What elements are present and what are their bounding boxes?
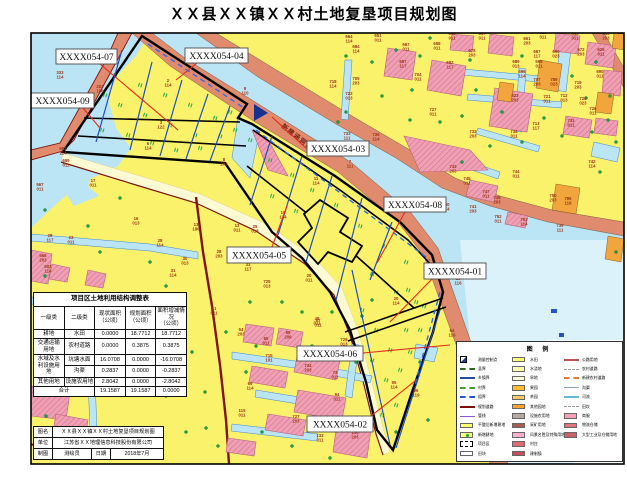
cell: 农村道路	[64, 339, 95, 355]
cell: 0.0000	[95, 329, 126, 339]
legend-swatch-icon	[564, 432, 580, 438]
tree-icon	[395, 431, 398, 434]
tree-icon	[409, 119, 412, 122]
tree-icon	[205, 427, 208, 430]
parcel-label: 705203	[352, 76, 360, 85]
tree-icon	[185, 431, 188, 434]
tree-icon	[281, 301, 284, 304]
cell: -16.0708	[156, 355, 187, 366]
legend-item: 设施农用地	[512, 411, 564, 420]
legend-column-boundaries: 测量控制点县界乡镇界村界组界规划道路管线平整后新增耕地新增耕地项目区田块	[460, 355, 512, 458]
legend-title: 图 例	[457, 342, 622, 353]
tree-icon	[165, 285, 168, 288]
parcel-label: 682117	[446, 60, 454, 69]
parcel-label: 750203	[549, 193, 557, 202]
parcel-label: 721011	[543, 94, 551, 103]
tree-icon	[591, 131, 594, 134]
tree-icon	[345, 55, 348, 58]
cell: 交通运输 用地	[34, 339, 65, 355]
callout-label: XXXX054-08	[388, 201, 443, 211]
tree-icon	[204, 391, 207, 394]
legend-label: 村界	[478, 385, 486, 391]
legend-item: 河流	[564, 393, 620, 402]
legend-swatch-icon	[512, 423, 528, 429]
legend-swatch-icon	[460, 451, 476, 457]
parcel-label: 658011	[433, 41, 441, 50]
parcel-label: 722013	[345, 91, 353, 100]
legend-swatch-icon	[460, 423, 476, 429]
parcel-label: 698011	[535, 59, 543, 68]
parcel-label: 681114	[59, 146, 67, 155]
parcel-label: 699011	[62, 158, 70, 167]
tree-icon	[609, 95, 612, 98]
legend-label: 乡镇界	[478, 375, 490, 381]
legend-label: 风景名胜及特殊用地	[530, 432, 565, 438]
parcel-label: 823203	[511, 93, 519, 102]
legend-item: 组界	[460, 393, 512, 402]
parcel-label: 734011	[510, 129, 518, 138]
parcel-label: 626011	[597, 47, 605, 56]
parcel-label: 744011	[512, 169, 520, 178]
legend-item: 采矿用地	[512, 421, 564, 430]
legend-label: 建制镇	[530, 451, 542, 457]
parcel-label: 727011	[429, 107, 437, 116]
tb-name-value: ＸＸ县ＸＸ镇ＸＸ村土地复垦项目规划图	[53, 427, 164, 438]
parcel-label: 736114	[372, 132, 380, 141]
legend-item: 公路用地	[564, 355, 620, 364]
legend-swatch-icon	[512, 413, 528, 419]
legend-item: 县界	[460, 364, 512, 373]
callout-label: XXXX054-03	[311, 145, 366, 155]
water-mark-icon	[559, 333, 564, 337]
tree-icon	[255, 345, 258, 348]
parcel-label: 733111	[343, 131, 351, 140]
tree-icon	[291, 445, 294, 448]
tree-icon	[419, 55, 422, 58]
col-header-delta: 面积增减情况 （公顷）	[156, 307, 187, 330]
legend-item: 茶园	[512, 393, 564, 402]
tb-date-label: 日期	[92, 449, 111, 460]
legend-item: 大型工业及仓储用地	[564, 430, 620, 439]
callout-label: XXXX054-04	[189, 52, 244, 62]
legend-swatch-icon	[460, 368, 476, 370]
legend-item: 测量控制点	[460, 355, 512, 364]
col-header-level2: 二级类	[64, 307, 95, 330]
tree-icon	[469, 59, 472, 62]
legend-swatch-icon	[460, 387, 476, 389]
water-mark-icon	[551, 309, 557, 313]
legend-label: 县界	[478, 366, 486, 372]
parcel-label: 742114	[588, 159, 596, 168]
tb-date-value: 2018年7月	[111, 449, 164, 460]
legend-swatch-icon	[512, 451, 528, 457]
tree-icon	[331, 311, 334, 314]
parcel-label: 712013	[560, 93, 568, 102]
cell: 耕地	[34, 329, 65, 339]
legend-item: 新增耕地	[460, 430, 512, 439]
tree-icon	[261, 431, 264, 434]
legend-label: 河流	[582, 394, 590, 400]
parcel-label: 732203	[469, 129, 477, 138]
legend-swatch-icon	[564, 377, 580, 379]
tb-unit-value: 江苏省ＸＸ地理信息科技股份有限公司	[53, 438, 164, 449]
parcel-label: 628011	[539, 30, 547, 39]
legend-swatch-icon	[512, 357, 528, 363]
tb-unit-label: 单位	[34, 438, 53, 449]
legend-swatch-icon	[460, 441, 476, 447]
callout-label: XXXX054-02	[313, 420, 368, 430]
parcel-label: 664114	[345, 34, 353, 43]
cell: 坑塘水面	[64, 355, 95, 366]
cell: 2.8042	[95, 377, 126, 387]
legend-item: 村界	[460, 383, 512, 392]
tree-icon	[475, 89, 478, 92]
parcel-label: 741203	[469, 204, 477, 213]
callout-label: XXXX054-07	[59, 53, 114, 63]
tree-icon	[217, 445, 220, 448]
parcel-label: 739111	[556, 223, 564, 232]
tree-icon	[301, 311, 304, 314]
parcel-label: 748203	[493, 195, 501, 204]
parcel-label: 689013	[512, 59, 520, 68]
legend-swatch-icon	[564, 396, 580, 398]
cell: 18.7712	[156, 329, 187, 339]
cell: 设施农用地	[64, 377, 95, 387]
tree-icon	[429, 37, 432, 40]
parcel-label: 718114	[329, 79, 337, 88]
legend-item: 村庄	[512, 440, 564, 449]
tree-icon	[44, 209, 47, 212]
tb-draw-value: 测绘员	[53, 449, 92, 460]
tree-icon	[225, 331, 228, 334]
parcel-label: 743203	[449, 164, 457, 173]
tree-icon	[461, 115, 464, 118]
legend-item: 新建农村道路	[564, 374, 620, 383]
legend-label: 茶园	[530, 394, 538, 400]
legend-label: 旱地	[530, 375, 538, 381]
legend-label: 设施农用地	[530, 413, 549, 419]
legend-swatch-icon	[564, 413, 580, 419]
legend-swatch-icon	[564, 369, 580, 370]
legend-swatch-icon	[460, 406, 476, 408]
tree-icon	[245, 371, 248, 374]
cell: 0.0000	[95, 339, 126, 355]
col-header-level1: 一级类	[34, 307, 65, 330]
col-header-planned: 规划面积 （公顷）	[125, 307, 156, 330]
tree-icon	[615, 141, 618, 144]
tree-icon	[337, 121, 340, 124]
cell: -2.8042	[156, 377, 187, 387]
legend-label: 平整后新增耕地	[478, 422, 505, 428]
tree-icon	[439, 121, 442, 124]
legend-swatch-icon	[512, 395, 528, 401]
parcel-label: 715101	[265, 353, 273, 362]
table-row: 合计 19.1587 19.1587 0.0000	[34, 387, 187, 397]
table-row: 水域及水 利设施用 地 坑塘水面 16.0708 0.0000 -16.0708	[34, 355, 187, 366]
callout-label: XXXX054-01	[428, 267, 483, 277]
legend-item: 物流仓储	[564, 421, 620, 430]
cell: 0.0000	[125, 377, 156, 387]
legend: 图 例 测量控制点县界乡镇界村界组界规划道路管线平整后新增耕地新增耕地项目区田块…	[456, 341, 623, 462]
tb-name-label: 图名	[34, 427, 53, 438]
tree-icon	[149, 261, 152, 264]
legend-item: 沟渠	[564, 383, 620, 392]
tree-icon	[249, 301, 252, 304]
legend-swatch-icon	[460, 416, 476, 417]
cell: 水田	[64, 329, 95, 339]
table-title: 项目区土地利用结构调整表	[34, 293, 187, 307]
parcel-label: 665203	[39, 253, 47, 262]
tree-icon	[427, 419, 430, 422]
legend-column-landuse: 水田水浇地旱地果园茶园其他园地设施农用地采矿用地风景名胜及特殊用地村庄建制镇	[512, 355, 564, 458]
legend-item: 田坎	[564, 402, 620, 411]
legend-item: 旱地	[512, 374, 564, 383]
legend-item: 平整后新增耕地	[460, 421, 512, 430]
parcel-label: 651011	[374, 33, 382, 42]
parcel-label: 567011	[36, 182, 44, 191]
parcel-label: 704011	[414, 72, 422, 81]
legend-label: 田块	[478, 451, 486, 457]
parcel-label: 687117	[399, 59, 407, 68]
cell: 其他用地	[34, 377, 65, 387]
legend-swatch-icon	[512, 366, 528, 372]
tree-icon	[345, 111, 348, 114]
cell: 16.0708	[95, 355, 126, 366]
parcel-label: 719203	[574, 80, 582, 89]
legend-item: 水田	[512, 355, 564, 364]
cell: 0.0000	[125, 355, 156, 366]
parcel-label: 725013	[263, 279, 271, 288]
table-row: 其他用地 设施农用地 2.8042 0.0000 -2.8042	[34, 377, 187, 387]
parcel-label: 115011	[239, 408, 247, 417]
legend-swatch-icon	[460, 377, 476, 379]
parcel-label: 133011	[316, 433, 324, 442]
tree-icon	[395, 49, 398, 52]
tree-icon	[561, 135, 564, 138]
legend-swatch-icon	[460, 356, 476, 363]
tree-icon	[543, 117, 546, 120]
cell-total: 合计	[34, 387, 95, 397]
tree-icon	[381, 95, 384, 98]
tree-icon	[371, 299, 374, 302]
legend-label: 物流仓储	[582, 422, 598, 428]
tree-icon	[571, 75, 574, 78]
tree-icon	[461, 161, 464, 164]
table-row: 耕地 水田 0.0000 18.7712 18.7712	[34, 329, 187, 339]
legend-item: 管线	[460, 411, 512, 420]
parcel-label: 745011	[463, 176, 471, 185]
legend-label: 测量控制点	[478, 357, 497, 363]
cell: 0.0000	[125, 366, 156, 377]
legend-swatch-icon	[564, 387, 580, 388]
legend-label: 水田	[530, 357, 538, 363]
tree-icon	[411, 89, 414, 92]
tree-icon	[615, 251, 618, 254]
tree-icon	[607, 119, 610, 122]
tree-icon	[45, 415, 48, 418]
parcel-label: 728013	[340, 337, 348, 346]
parcel-label: 667011	[402, 42, 410, 51]
map-title-block: 图名 ＸＸ县ＸＸ镇ＸＸ村土地复垦项目规划图 单位 江苏省ＸＸ地理信息科技股份有限…	[33, 426, 164, 460]
tree-icon	[501, 111, 504, 114]
legend-label: 水浇地	[530, 366, 542, 372]
cell: 0.3875	[156, 339, 187, 355]
tree-icon	[44, 275, 47, 278]
tree-icon	[329, 457, 332, 460]
parcel-label: 333114	[56, 70, 64, 79]
parcel-label: 690023	[552, 49, 560, 58]
legend-swatch-icon	[512, 441, 528, 447]
legend-label: 大型工业及仓储用地	[582, 432, 617, 438]
cell: 0.0000	[156, 387, 187, 397]
legend-label: 新建农村道路	[582, 375, 605, 381]
parcel-label: 720023	[579, 96, 587, 105]
tree-icon	[521, 141, 524, 144]
legend-label: 组界	[478, 394, 486, 400]
landuse-adjustment-table: 项目区土地利用结构调整表 一级类 二级类 现状面积 （公顷） 规划面积 （公顷）…	[33, 292, 187, 397]
legend-item: 其他园地	[512, 402, 564, 411]
parcel-label: 752011	[494, 214, 502, 223]
legend-label: 项目区	[478, 441, 490, 447]
parcel-label: 696114	[518, 69, 526, 78]
tree-icon	[371, 61, 374, 64]
legend-item: 农村道路	[564, 364, 620, 373]
tree-icon	[119, 197, 122, 200]
planning-map-page: ＸＸ县ＸＸ镇ＸＸ村土地复垦项目规划图	[0, 0, 627, 478]
legend-item: 商服	[564, 411, 620, 420]
parcel-label: 789023	[550, 77, 558, 86]
legend-label: 商服	[582, 413, 590, 419]
tree-icon	[521, 55, 524, 58]
cell: 沟渠	[64, 366, 95, 377]
legend-swatch-icon	[564, 423, 580, 429]
cell: 18.7712	[125, 329, 156, 339]
legend-swatch-icon	[512, 376, 528, 382]
legend-swatch-icon	[564, 406, 580, 407]
legend-label: 规划道路	[478, 404, 494, 410]
parcel-label: 672203	[577, 47, 585, 56]
parcel-label: 726011	[589, 106, 597, 115]
legend-swatch-icon	[512, 432, 528, 438]
cell: 0.3875	[125, 339, 156, 355]
parcel-label: 684114	[352, 44, 360, 53]
cell: -0.2837	[156, 366, 187, 377]
parcel-label: 747011	[482, 189, 490, 198]
parcel-label: 713117	[532, 121, 540, 130]
tree-icon	[599, 171, 602, 174]
legend-label: 公路用地	[582, 357, 598, 363]
legend-item: 乡镇界	[460, 374, 512, 383]
parcel-label: 731011	[567, 118, 575, 127]
legend-label: 采矿用地	[530, 422, 546, 428]
legend-item: 规划道路	[460, 402, 512, 411]
callout-label: XXXX054-06	[303, 350, 358, 360]
table-row: 交通运输 用地 农村道路 0.0000 0.3875 0.3875	[34, 339, 187, 355]
legend-swatch-icon	[460, 396, 476, 398]
legend-label: 田坎	[582, 404, 590, 410]
legend-item: 田块	[460, 449, 512, 458]
legend-label: 果园	[530, 385, 538, 391]
tree-icon	[87, 225, 90, 228]
parcel-label: 679203	[468, 48, 476, 57]
parcel-label: 667117	[533, 49, 541, 58]
legend-label: 沟渠	[582, 385, 590, 391]
legend-label: 管线	[478, 413, 486, 419]
tree-icon	[489, 145, 492, 148]
legend-column-lines: 公路用地农村道路新建农村道路沟渠河流田坎商服物流仓储大型工业及仓储用地	[564, 355, 620, 458]
tree-icon	[99, 251, 102, 254]
parcel-label: 661203	[523, 36, 531, 45]
col-header-current: 现状面积 （公顷）	[95, 307, 126, 330]
legend-label: 村庄	[530, 441, 538, 447]
cell: 0.2837	[95, 366, 126, 377]
callout-label: XXXX054-05	[232, 251, 287, 261]
legend-swatch-icon	[564, 359, 580, 361]
parcel-label: 707203	[533, 77, 541, 86]
legend-label: 农村道路	[582, 366, 598, 372]
legend-item: 风景名胜及特殊用地	[512, 430, 564, 439]
tree-icon	[595, 61, 598, 64]
legend-item: 水浇地	[512, 364, 564, 373]
legend-swatch-icon	[512, 385, 528, 391]
tree-icon	[191, 351, 194, 354]
parcel-label: 727203	[292, 414, 300, 423]
tb-draw-label: 制图	[34, 449, 53, 460]
legend-swatch-icon	[512, 404, 528, 410]
callout-label: XXXX054-09	[35, 97, 90, 107]
cell: 19.1587	[95, 387, 126, 397]
parcel-label: 203196	[96, 84, 104, 93]
parcel-label: 786118	[564, 196, 572, 205]
legend-label: 其他园地	[530, 404, 546, 410]
legend-label: 新增耕地	[478, 432, 494, 438]
cell: 水域及水 利设施用 地	[34, 355, 65, 378]
legend-item: 项目区	[460, 440, 512, 449]
parcel-label: 753114	[520, 217, 528, 226]
legend-item: 建制镇	[512, 449, 564, 458]
legend-item: 果园	[512, 383, 564, 392]
parcel-label: 734203	[304, 363, 312, 372]
parcel-label: 690011	[596, 69, 604, 78]
legend-swatch-icon	[460, 432, 476, 438]
parcel-label: 602114	[44, 264, 52, 273]
cell: 19.1587	[125, 387, 156, 397]
